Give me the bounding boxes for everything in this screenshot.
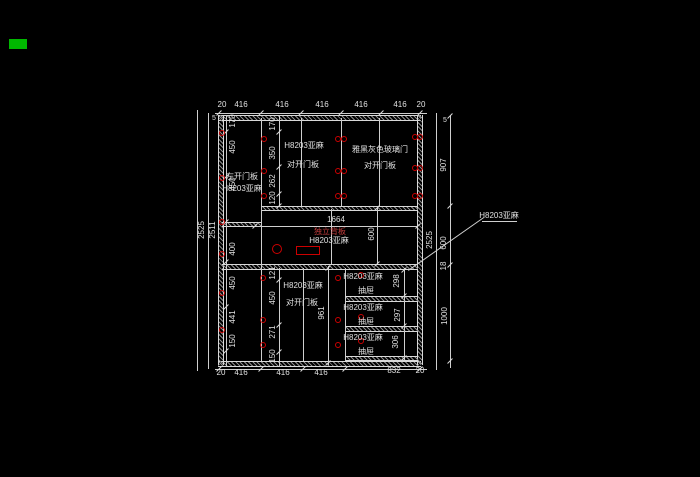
dim-lower-door-seg: 271 [269, 325, 277, 338]
dim-right-seg: 907 [440, 158, 448, 171]
hinge-marker [335, 275, 341, 281]
hinge-marker [219, 130, 225, 136]
drawer-height-dim: 306 [392, 335, 400, 348]
upper-mid-door-material: H8203亚麻 [284, 142, 324, 150]
dim-lower-door-seg: 121 [269, 266, 277, 279]
drawer-divider-1 [345, 296, 418, 302]
leader-label: H8203亚麻 [479, 212, 519, 220]
upper-left-door-material: H8203亚麻 [222, 185, 262, 193]
leader-underline [482, 221, 517, 222]
hinge-marker [341, 168, 347, 174]
dim-overall-height-right: 2525 [426, 231, 434, 249]
dim-lower-door-seg: 450 [269, 291, 277, 304]
dim-top: 416 [234, 101, 247, 109]
drawer-material: H8203亚麻 [343, 273, 383, 281]
dim-top: 416 [354, 101, 367, 109]
hinge-marker [261, 168, 267, 174]
left-overall-dim-line [197, 110, 198, 371]
dim-top: 20 [417, 101, 426, 109]
upper-right-door-material: 雅黑灰色玻璃门 [352, 146, 408, 154]
drawer-dim-line [404, 268, 405, 360]
right-overall-dim-line [436, 113, 437, 370]
cad-canvas: 20 416 416 416 416 416 20 20 416 416 416… [0, 0, 700, 477]
dim-bottom: 416 [314, 369, 327, 377]
hinge-marker [335, 342, 341, 348]
left-interior-dim-line [208, 113, 209, 369]
dim-upper-door-seg: 170 [269, 117, 277, 130]
left-segment-dim-line [226, 115, 227, 367]
hinge-marker [341, 136, 347, 142]
niche-top-shelf [261, 206, 418, 211]
upper-left-door-label: 左开门板 [226, 173, 258, 181]
dim-top-gap: 5 [212, 115, 216, 123]
dim-right-seg: 18 [440, 262, 448, 271]
hinge-marker [219, 175, 225, 181]
partition-left-column [261, 118, 262, 361]
upper-right-door-label: 对开门板 [364, 162, 396, 170]
lower-door-material: H8203亚麻 [283, 282, 323, 290]
hinge-marker [261, 136, 267, 142]
top-dim-line [215, 113, 427, 114]
niche-height-dim-line [377, 208, 378, 264]
dim-left-seg: 170 [229, 114, 237, 127]
niche-note-red: 独立背板 [314, 228, 346, 236]
hinge-marker [417, 193, 423, 199]
dim-left-seg: 400 [229, 242, 237, 255]
drawer-label: 抽屉 [358, 287, 374, 295]
hinge-marker [219, 290, 225, 296]
dim-left-seg: 441 [229, 310, 237, 323]
dim-upper-door-seg: 350 [269, 146, 277, 159]
dim-top: 416 [275, 101, 288, 109]
drawer-divider-2 [345, 326, 418, 332]
drawer-height-dim: 297 [394, 308, 402, 321]
drawer-divider-3 [345, 356, 418, 361]
drawer-partition [345, 268, 346, 361]
dim-left-seg: 450 [229, 276, 237, 289]
dim-bottom: 416 [234, 369, 247, 377]
hinge-marker [261, 193, 267, 199]
lower-door-height-dim: 961 [318, 306, 326, 319]
dim-top: 20 [218, 101, 227, 109]
niche-width-dim: 1664 [327, 216, 345, 224]
dim-top: 416 [393, 101, 406, 109]
dim-upper-door-seg: 120 [269, 191, 277, 204]
hinge-marker [417, 165, 423, 171]
dim-bottom: 416 [276, 369, 289, 377]
dim-right-seg: 1000 [441, 307, 449, 325]
dim-top-gap-right: 5 [443, 117, 447, 125]
dim-interior-height: 2511 [209, 221, 217, 238]
drawer-label: 抽屉 [358, 348, 374, 356]
green-swatch [9, 39, 27, 49]
drawer-material: H8203亚麻 [343, 334, 383, 342]
hinge-marker [219, 219, 225, 225]
niche-note: H8203亚麻 [309, 237, 349, 245]
hinge-marker [260, 317, 266, 323]
lower-door-label: 对开门板 [286, 299, 318, 307]
dim-left-seg: 450 [229, 140, 237, 153]
dim-upper-door-seg: 262 [269, 174, 277, 187]
dim-top: 416 [315, 101, 328, 109]
hinge-marker [417, 134, 423, 140]
drawer-label: 抽屉 [358, 318, 374, 326]
niche-bottom-shelf [222, 264, 418, 270]
niche-circle-symbol [272, 244, 282, 254]
dim-bottom: 20 [217, 369, 226, 377]
hinge-marker [260, 275, 266, 281]
top-panel [218, 115, 421, 121]
niche-height-dim: 600 [368, 227, 376, 240]
dim-right-seg: 600 [440, 236, 448, 249]
dim-bottom: 832 [387, 367, 400, 375]
hinge-marker [260, 342, 266, 348]
dim-bottom: 20 [416, 367, 425, 375]
hinge-marker [341, 193, 347, 199]
upper-mid-door-label: 对开门板 [287, 161, 319, 169]
niche-rect-symbol [296, 246, 320, 255]
dim-overall-height: 2525 [198, 221, 206, 239]
drawer-height-dim: 298 [393, 274, 401, 287]
hinge-marker [219, 251, 225, 257]
hinge-marker [219, 327, 225, 333]
hinge-marker [335, 317, 341, 323]
dim-left-seg: 150 [229, 334, 237, 347]
lower-door-height-dim-line [328, 266, 329, 365]
dim-lower-door-seg: 150 [269, 349, 277, 362]
drawer-material: H8203亚麻 [343, 304, 383, 312]
